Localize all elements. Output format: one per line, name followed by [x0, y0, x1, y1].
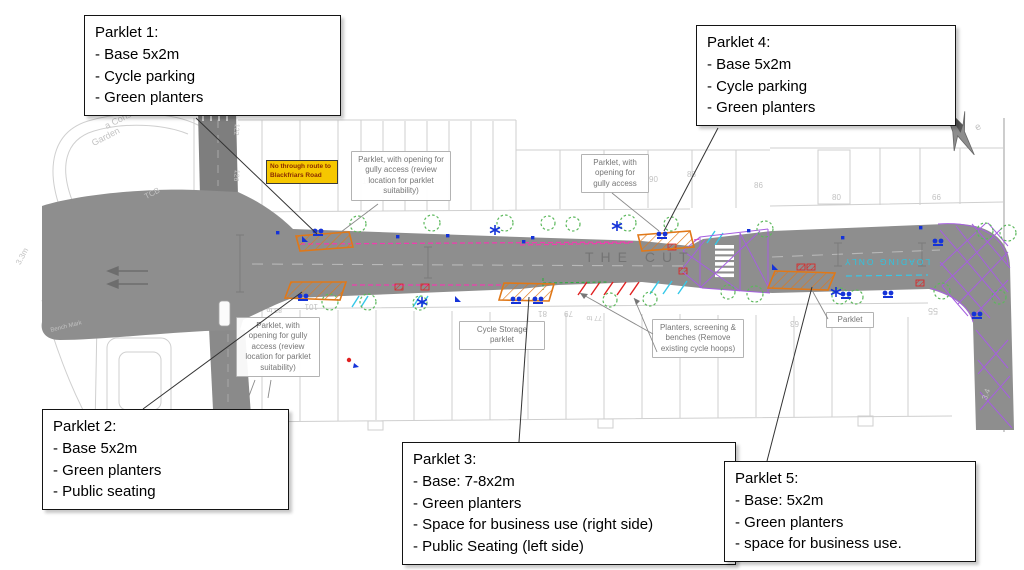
callout-line: - Public seating: [53, 481, 278, 503]
callout-parklet-1: Parklet 1: - Base 5x2m- Cycle parking- G…: [84, 15, 341, 116]
map-label: 83 to: [266, 306, 282, 313]
callout-line: - Base: 7-8x2m: [413, 471, 725, 493]
callout-line: - Base 5x2m: [95, 44, 330, 66]
annotation-gully-top-left: Parklet, with opening for gully access (…: [351, 151, 451, 201]
callout-line: - Base 5x2m: [707, 54, 945, 76]
map-label: 3.4: [980, 388, 992, 402]
map-label: 63: [790, 319, 799, 328]
callout-title: Parklet 1:: [95, 22, 330, 44]
map-label: 88: [687, 170, 696, 179]
annotation-gully-bottom-left: Parklet, with opening for gully access (…: [236, 317, 320, 377]
no-through-route-label: No through route to Blackfriars Road: [266, 160, 338, 184]
annotation-planters-screening: Planters, screening & benches (Remove ex…: [652, 319, 744, 358]
map-label: 66: [932, 193, 941, 202]
map-label: 101: [305, 302, 318, 311]
callout-line: - Cycle parking: [95, 66, 330, 88]
map-label: 122: [232, 123, 240, 135]
street-name-label: THE CUT: [585, 249, 695, 265]
map-label: 90: [649, 175, 658, 184]
callout-line: - Green planters: [53, 460, 278, 482]
callout-line: - Space for business use (right side): [413, 514, 725, 536]
callout-title: Parklet 4:: [707, 32, 945, 54]
callout-line: - Cycle parking: [707, 76, 945, 98]
map-label: 80: [832, 193, 841, 202]
map-label: 79: [564, 309, 573, 318]
loading-only-marking: LOADING ONLY: [843, 257, 930, 267]
map-label: 126: [232, 169, 240, 181]
parklet-scheme-plan: a ConsGardenTCB3.3mBench Mark12212611010…: [0, 0, 1024, 570]
callout-line: - Green planters: [707, 97, 945, 119]
annotation-cycle-storage: Cycle Storage parklet: [459, 321, 545, 350]
callout-line: - Green planters: [95, 87, 330, 109]
map-label: 81: [538, 309, 547, 318]
callout-parklet-5: Parklet 5: - Base: 5x2m- Green planters-…: [724, 461, 976, 562]
callout-title: Parklet 2:: [53, 416, 278, 438]
callout-title: Parklet 3:: [413, 449, 725, 471]
callout-parklet-2: Parklet 2: - Base 5x2m- Green planters- …: [42, 409, 289, 510]
callout-parklet-3: Parklet 3: - Base: 7-8x2m- Green planter…: [402, 442, 736, 565]
map-label: 86: [754, 181, 763, 190]
map-label: TCB: [143, 186, 161, 201]
callout-title: Parklet 5:: [735, 468, 965, 490]
annotation-gully-top-right: Parklet, with opening for gully access: [581, 154, 649, 193]
callout-line: - Green planters: [413, 493, 725, 515]
annotation-parklet: Parklet: [826, 312, 874, 328]
map-label: 3.3m: [14, 246, 30, 266]
callout-line: - Public Seating (left side): [413, 536, 725, 558]
callout-parklet-4: Parklet 4: - Base 5x2m- Cycle parking- G…: [696, 25, 956, 126]
callout-line: - Green planters: [735, 512, 965, 534]
callout-line: - space for business use.: [735, 533, 965, 555]
map-label: 55: [928, 306, 938, 316]
callout-line: - Base 5x2m: [53, 438, 278, 460]
callout-line: - Base: 5x2m: [735, 490, 965, 512]
map-label: Bench Mark: [50, 320, 83, 334]
map-label: 77 to: [586, 314, 602, 321]
map-label: e: [973, 121, 983, 133]
